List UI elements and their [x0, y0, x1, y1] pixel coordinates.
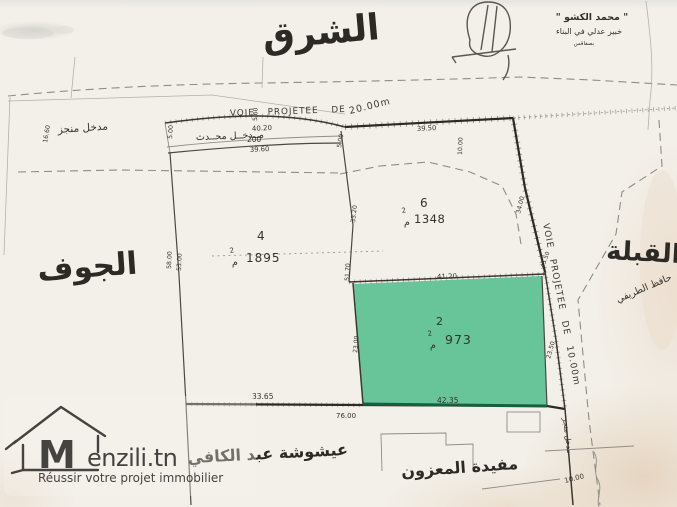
small-structure	[507, 412, 540, 432]
road-right-edge-upper	[513, 118, 545, 272]
compass-left: الجوف	[36, 246, 138, 289]
measure-5-00-left: 5.00	[167, 125, 175, 139]
measure-39-60: 39.60	[250, 145, 270, 154]
plot-6-area: 1348	[414, 212, 445, 226]
scanned-cadastral-plan: الشرق الجوف القبلة " محمد الكشو " خبير ع…	[0, 0, 677, 507]
measure-33-20: 33.20	[350, 205, 359, 223]
road-top-label: VOIE PROJETEE DE	[230, 105, 346, 119]
plot-2-unit: م	[430, 340, 436, 351]
dashed-middle-line	[18, 170, 340, 173]
plot-2-area: 973	[445, 332, 472, 347]
stamp-expert-name: " محمد الكشو "	[556, 12, 628, 23]
plot-6-number: 6	[420, 196, 428, 210]
plot-4-unit: م	[232, 257, 238, 268]
measure-200: 200	[247, 135, 262, 144]
stamp-expert-title: خبير عدلي في البناء	[556, 27, 622, 36]
measure-42-35: 42.35	[437, 396, 459, 405]
measure-58-00: 58.00	[166, 251, 174, 269]
plot-4-unit-sup: 2	[229, 246, 235, 255]
entrance-left-label: مدخل منجز	[56, 121, 108, 137]
measure-53-00: 53.00	[176, 253, 184, 271]
left-boundary	[170, 153, 186, 404]
plot-4-number: 4	[257, 229, 265, 243]
stamp-signature	[452, 2, 516, 80]
neighbor-bottom-center: مفيدة المعزون	[401, 454, 519, 481]
dashed-top-road-line	[8, 77, 677, 96]
measure-16-60: 16.60	[42, 125, 52, 144]
entrance-bottom-label: مدخل منجز	[561, 416, 574, 454]
logo-tagline: Réussir votre projet immobilier	[38, 471, 223, 485]
measure-10-00-top: 10.00	[457, 137, 465, 155]
measure-40-20: 40.20	[252, 124, 272, 133]
measure-33-65: 33.65	[252, 392, 274, 401]
measure-41-20: 41.20	[437, 272, 457, 281]
plot-4-area: 1895	[246, 251, 281, 265]
plot-2-number: 2	[436, 315, 443, 328]
measure-39-50: 39.50	[417, 124, 437, 133]
compass-top: الشرق	[261, 7, 381, 58]
measure-34-00: 34.00	[515, 196, 526, 215]
measure-5-00-right: 5.00	[336, 134, 345, 149]
measure-76-00: 76.00	[336, 412, 356, 420]
paper-artifacts	[2, 26, 677, 350]
dashed-inner-plot6	[340, 162, 521, 244]
logo-brand: enzili.tn	[87, 444, 177, 472]
measure-5-60: 5.60	[252, 107, 259, 121]
road-side-label: VOIE PROJETEE DE 10.00m	[540, 223, 581, 387]
road-top-width: 20.00m	[348, 96, 392, 117]
watermark-logo: M enzili.tn Réussir votre projet immobil…	[4, 396, 256, 496]
measure-10-00-bottom: 10.00	[564, 472, 585, 485]
plot-6-unit-sup: 2	[401, 206, 407, 215]
voie20-continuation	[513, 108, 677, 118]
compass-right: القبلة	[605, 236, 677, 270]
dotted-leader	[212, 251, 383, 256]
plot-6-unit: م	[404, 217, 410, 228]
measure-23-50: 23.50	[545, 341, 557, 360]
measure-51-70: 51.70	[344, 263, 352, 281]
stamp-expert-place: بصفاقس	[574, 41, 595, 47]
